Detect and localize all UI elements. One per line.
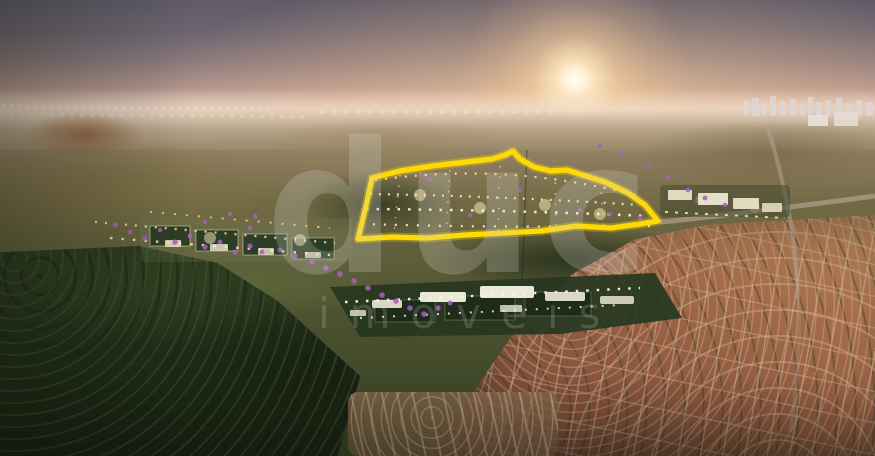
- watermark-brand: duc: [266, 118, 658, 300]
- watermark-subtitle: imóveis: [318, 293, 621, 335]
- aerial-photo: duc imóveis: [0, 0, 875, 456]
- commercial-strip: [660, 185, 790, 218]
- distant-city-towers: [744, 96, 873, 126]
- roads: [660, 128, 875, 432]
